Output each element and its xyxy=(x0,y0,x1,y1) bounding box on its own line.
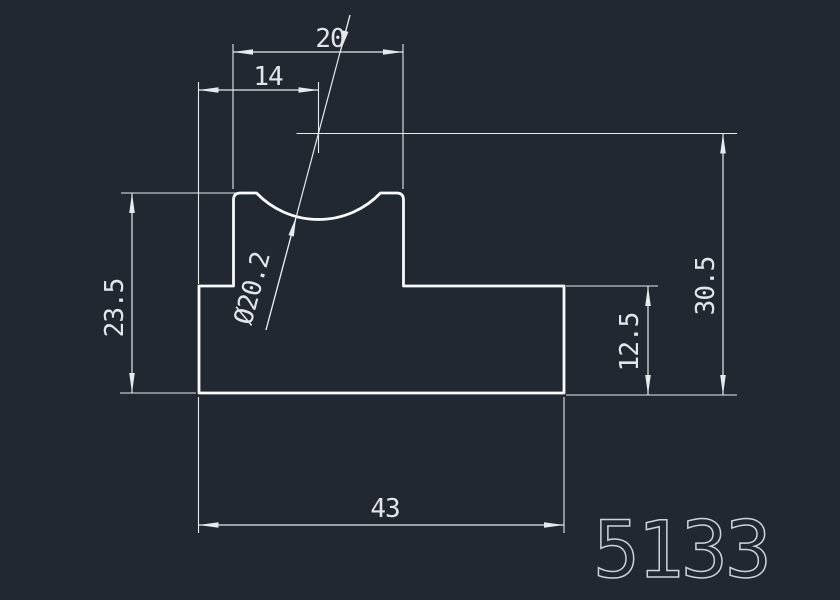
dimension-value-30-5: 30.5 xyxy=(691,257,721,316)
part-number: 5133 xyxy=(593,506,769,596)
dimension-value-12-5: 12.5 xyxy=(615,313,645,372)
extension-lines xyxy=(120,44,737,533)
dimension-value-14: 14 xyxy=(253,62,283,92)
dimension-value-43: 43 xyxy=(370,494,399,524)
dimension-value-23-5: 23.5 xyxy=(100,279,130,338)
dimension-lines xyxy=(132,52,723,525)
dimension-value-20: 20 xyxy=(315,24,344,54)
dimension-texts: 20 14 23.5 Ø20.2 12.5 30.5 43 xyxy=(100,24,721,524)
drawing-canvas: 20 14 23.5 Ø20.2 12.5 30.5 43 5133 xyxy=(0,0,840,600)
cad-drawing: 20 14 23.5 Ø20.2 12.5 30.5 43 5133 xyxy=(0,0,840,600)
